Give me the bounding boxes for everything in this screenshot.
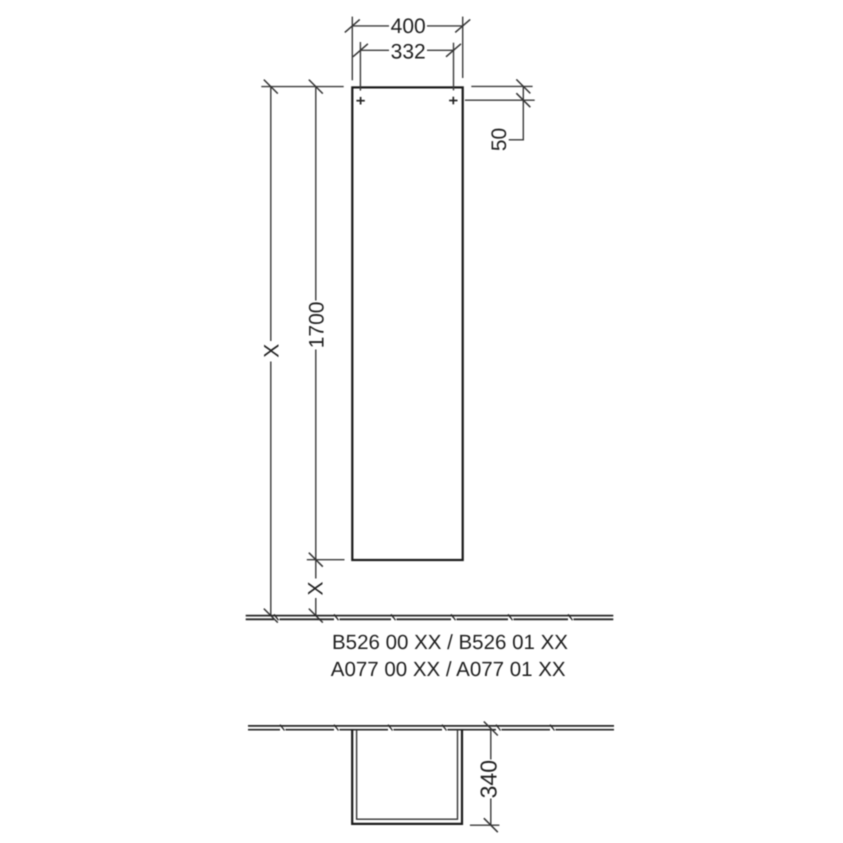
svg-text:1700: 1700 [305, 302, 328, 349]
svg-text:50: 50 [488, 128, 511, 151]
svg-text:B526 00 XX / B526 01 XX: B526 00 XX / B526 01 XX [332, 631, 568, 654]
svg-text:X: X [305, 581, 328, 595]
svg-text:340: 340 [476, 760, 502, 798]
svg-text:A077 00 XX / A077 01 XX: A077 00 XX / A077 01 XX [331, 658, 566, 681]
svg-text:332: 332 [391, 40, 426, 63]
svg-text:400: 400 [391, 15, 426, 38]
svg-text:X: X [261, 344, 284, 358]
